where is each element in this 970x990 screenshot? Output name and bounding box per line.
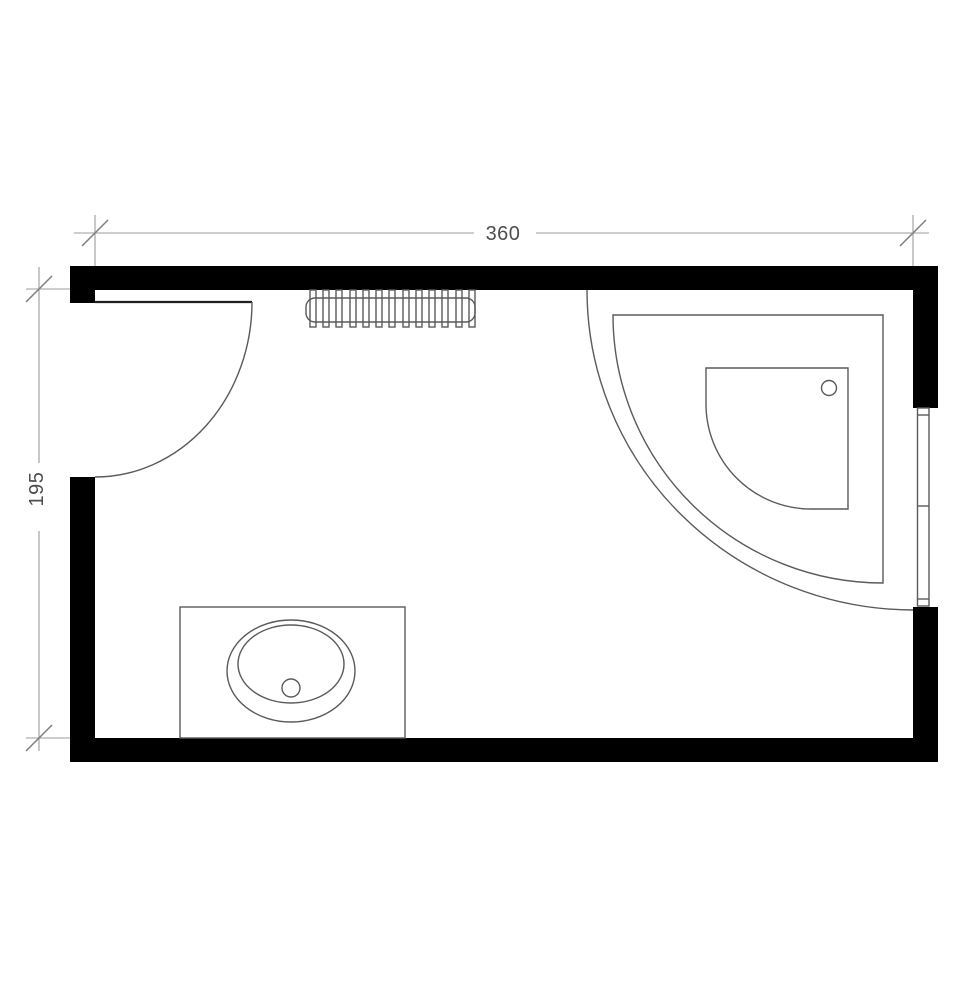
sink-drain bbox=[282, 679, 300, 697]
left-wall-lower bbox=[70, 477, 95, 762]
width-dimension: 360 bbox=[74, 215, 929, 266]
bottom-wall bbox=[70, 738, 938, 762]
width-dimension-label: 360 bbox=[486, 223, 521, 245]
vanity-counter bbox=[180, 607, 405, 738]
shower-enclosure-panel bbox=[613, 315, 883, 583]
window-frame bbox=[918, 408, 930, 606]
top-wall bbox=[70, 266, 938, 290]
vanity-sink bbox=[180, 607, 405, 738]
right-wall-lower bbox=[913, 607, 938, 762]
radiator bbox=[306, 290, 475, 327]
shower-drain bbox=[822, 381, 837, 396]
radiator-body bbox=[306, 298, 475, 322]
shower-tray bbox=[706, 368, 848, 509]
right-wall-upper bbox=[913, 266, 938, 408]
window bbox=[918, 408, 930, 606]
walls bbox=[70, 266, 938, 762]
height-dimension: 195 bbox=[26, 267, 70, 751]
door bbox=[95, 302, 252, 477]
height-dimension-label: 195 bbox=[26, 472, 48, 507]
sink-basin bbox=[238, 625, 344, 703]
left-wall-upper-stub bbox=[70, 266, 95, 303]
shower-enclosure-outer-arc bbox=[587, 290, 913, 610]
floor-plan-drawing: 360 195 bbox=[0, 0, 970, 990]
sink-outer-rim bbox=[227, 620, 355, 722]
floor-plan-canvas: 360 195 bbox=[0, 0, 970, 990]
corner-shower bbox=[587, 290, 913, 610]
door-swing-arc bbox=[95, 302, 252, 477]
